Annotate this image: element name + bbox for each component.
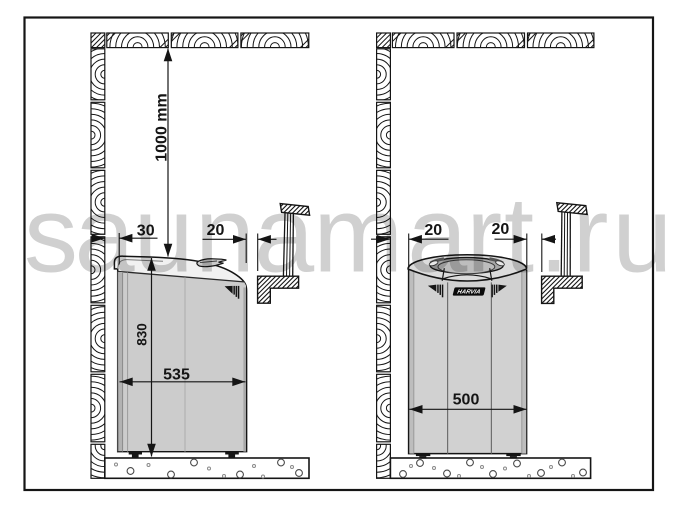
svg-text:1000 mm: 1000 mm	[154, 93, 171, 162]
svg-text:saunamart.ru: saunamart.ru	[24, 174, 672, 295]
svg-text:830: 830	[135, 323, 150, 346]
svg-text:535: 535	[163, 366, 190, 383]
svg-text:500: 500	[453, 391, 480, 408]
